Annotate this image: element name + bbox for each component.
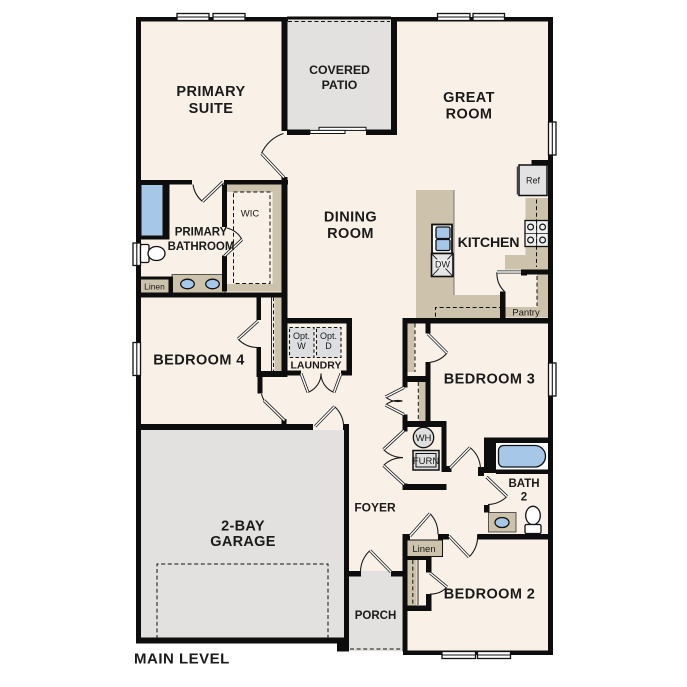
svg-text:BATHROOM: BATHROOM [168, 241, 235, 253]
svg-text:DINING: DINING [324, 210, 377, 226]
svg-text:FOYER: FOYER [354, 501, 396, 515]
svg-text:W: W [297, 341, 306, 351]
svg-text:SUITE: SUITE [189, 101, 234, 117]
svg-text:BATH: BATH [508, 478, 539, 490]
svg-text:PATIO: PATIO [322, 78, 358, 92]
svg-text:BEDROOM 3: BEDROOM 3 [444, 372, 535, 388]
svg-text:GREAT: GREAT [443, 90, 495, 106]
svg-text:Opt.: Opt. [293, 331, 310, 341]
svg-text:WIC: WIC [241, 209, 260, 220]
svg-text:Opt.: Opt. [320, 331, 337, 341]
svg-text:ROOM: ROOM [446, 107, 493, 123]
svg-text:Linen: Linen [144, 282, 165, 292]
svg-text:MAIN LEVEL: MAIN LEVEL [134, 651, 230, 668]
svg-text:Pantry: Pantry [512, 308, 540, 319]
svg-text:2: 2 [521, 492, 527, 504]
svg-text:2-BAY: 2-BAY [221, 519, 265, 535]
svg-text:PRIMARY: PRIMARY [176, 84, 245, 100]
svg-text:Ref: Ref [526, 176, 541, 186]
svg-text:PRIMARY: PRIMARY [175, 227, 228, 239]
svg-text:GARAGE: GARAGE [210, 534, 275, 550]
svg-text:PORCH: PORCH [355, 610, 397, 622]
svg-text:COVERED: COVERED [309, 63, 370, 77]
svg-text:BEDROOM 2: BEDROOM 2 [444, 587, 535, 603]
svg-text:KITCHEN: KITCHEN [458, 235, 520, 251]
svg-text:DW: DW [435, 260, 450, 270]
svg-text:FURN: FURN [413, 456, 440, 467]
svg-text:LAUNDRY: LAUNDRY [291, 360, 342, 372]
svg-text:WH: WH [416, 433, 432, 444]
svg-text:Linen: Linen [412, 544, 435, 555]
svg-text:ROOM: ROOM [327, 226, 374, 242]
svg-text:BEDROOM 4: BEDROOM 4 [153, 353, 244, 369]
svg-text:D: D [325, 341, 332, 351]
